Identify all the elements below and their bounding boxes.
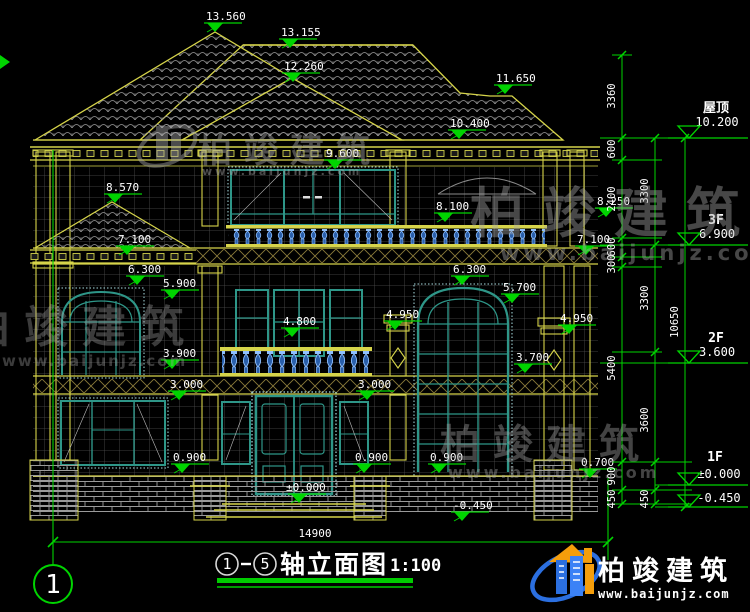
svg-text:3.600: 3.600 [699,345,735,359]
mark-neg-0450: -0.450 [453,499,493,512]
mark-10400: 10.400 [450,117,490,130]
mark-0900-left: 0.900 [173,451,206,464]
logo-brand-text: 柏竣建筑 [598,555,734,587]
svg-text:600: 600 [606,140,618,159]
svg-text:1F: 1F [707,450,723,465]
mark-12260: 12.260 [284,60,324,73]
mark-4950-left: 4.950 [386,308,419,321]
mark-5900: 5.900 [163,277,196,290]
watermark-right: 柏竣建筑 www.baijunjz.com [470,182,750,265]
axis-bubble-1-label: 1 [45,570,61,600]
svg-text:www.baijunjz.com: www.baijunjz.com [500,241,750,265]
mark-5700: 5.700 [503,281,536,294]
mark-6300-left: 6.300 [128,263,161,276]
level-ground-value: -0.450 [697,491,740,505]
svg-text:450: 450 [606,490,618,509]
bottom-total-dimension: 14900 [298,527,331,540]
svg-text:www.baijunjz.com: www.baijunjz.com [202,165,362,178]
mark-11650: 11.650 [496,72,536,85]
logo-url-text: www.baijunjz.com [598,587,730,601]
mark-8100: 8.100 [436,200,469,213]
mark-4950-right: 4.950 [560,312,593,325]
mark-7100-left: 7.100 [118,233,151,246]
svg-text:www.baijunjz.com: www.baijunjz.com [448,463,659,482]
svg-text:屋顶: 屋顶 [703,101,729,116]
mark-0900-center: 0.900 [355,451,388,464]
cad-elevation-drawing: 14900 1 13.560 13.155 12.260 11.650 10.4… [0,0,750,612]
mark-8570: 8.570 [106,181,139,194]
right-chain-total: 10650 [669,306,681,338]
mark-13560: 13.560 [206,10,246,23]
mark-3000-left: 3.000 [170,378,203,391]
svg-text:10.200: 10.200 [695,115,738,129]
svg-text:5400: 5400 [606,355,618,380]
svg-text:2F: 2F [708,331,724,346]
svg-text:±0.000: ±0.000 [697,467,740,481]
svg-text:www.baijunjz.com: www.baijunjz.com [2,352,187,370]
mark-4800: 4.800 [283,315,316,328]
title-axis-start: 1 [222,555,231,573]
mark-3000-right: 3.000 [358,378,391,391]
svg-text:450: 450 [639,490,651,509]
mark-13155: 13.155 [281,26,321,39]
drawing-scale: 1:100 [390,556,441,576]
title-axis-end: 5 [260,555,269,573]
svg-text:柏竣建筑: 柏竣建筑 [440,422,652,468]
mark-3700: 3.700 [516,351,549,364]
mark-zero: ±0.000 [286,481,326,494]
svg-text:柏竣建筑: 柏竣建筑 [470,182,750,245]
watermark-bottom: 柏竣建筑 www.baijunjz.com [440,422,659,482]
svg-text:柏竣建筑: 柏竣建筑 [0,302,198,353]
drawing-title: 轴立面图 [280,550,388,579]
svg-text:3360: 3360 [606,83,618,108]
second-floor-balcony [220,347,372,377]
watermark-left: 柏竣建筑 www.baijunjz.com [0,302,198,370]
svg-text:3300: 3300 [639,285,651,310]
mark-6300-right: 6.300 [453,263,486,276]
